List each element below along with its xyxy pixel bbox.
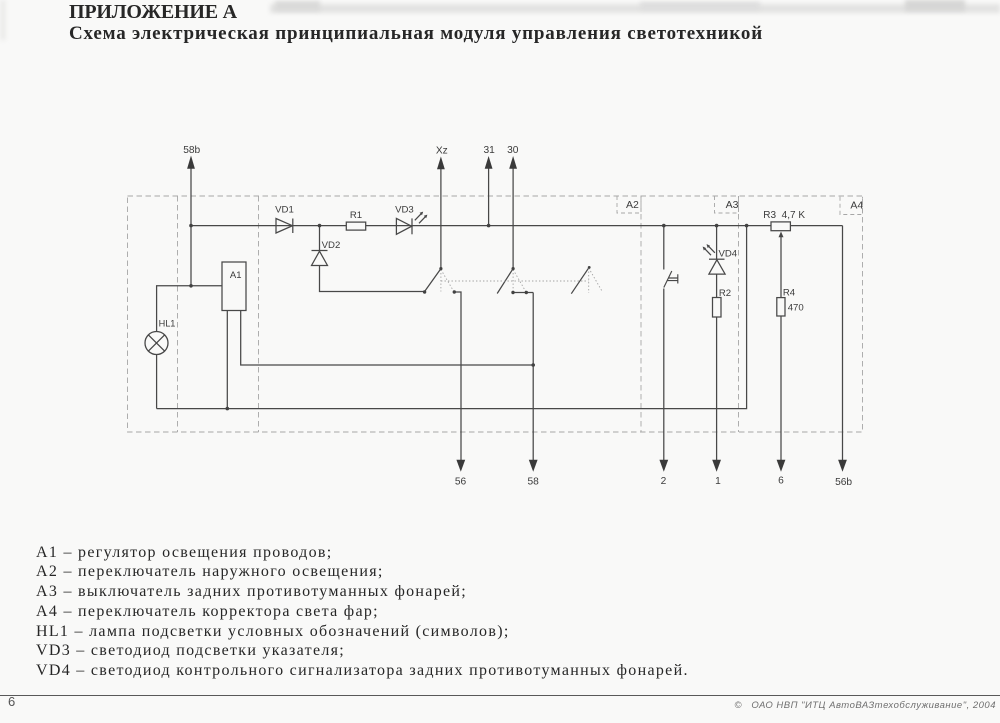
- svg-text:31: 31: [484, 145, 496, 156]
- svg-text:A3: A3: [726, 199, 739, 211]
- svg-text:58: 58: [528, 477, 540, 488]
- svg-text:VD4: VD4: [718, 249, 737, 260]
- svg-text:VD3: VD3: [395, 205, 414, 216]
- svg-text:A2: A2: [626, 199, 639, 211]
- svg-text:470: 470: [788, 303, 804, 314]
- svg-text:1: 1: [715, 476, 721, 487]
- svg-text:HL1: HL1: [159, 319, 176, 329]
- svg-text:56b: 56b: [835, 477, 852, 488]
- svg-text:R3 4,7 K: R3 4,7 K: [763, 210, 805, 221]
- svg-text:R4: R4: [783, 288, 796, 299]
- svg-text:VD1: VD1: [275, 204, 294, 215]
- svg-text:A1: A1: [230, 270, 242, 281]
- svg-text:VD2: VD2: [322, 240, 341, 251]
- svg-text:R2: R2: [719, 288, 731, 299]
- svg-text:30: 30: [507, 145, 519, 156]
- svg-text:6: 6: [778, 476, 784, 487]
- svg-text:R1: R1: [350, 210, 362, 221]
- svg-text:A4: A4: [850, 199, 863, 211]
- svg-text:2: 2: [661, 476, 667, 487]
- svg-text:56: 56: [455, 477, 467, 488]
- svg-text:Xz: Xz: [436, 146, 448, 157]
- svg-text:58b: 58b: [183, 145, 200, 156]
